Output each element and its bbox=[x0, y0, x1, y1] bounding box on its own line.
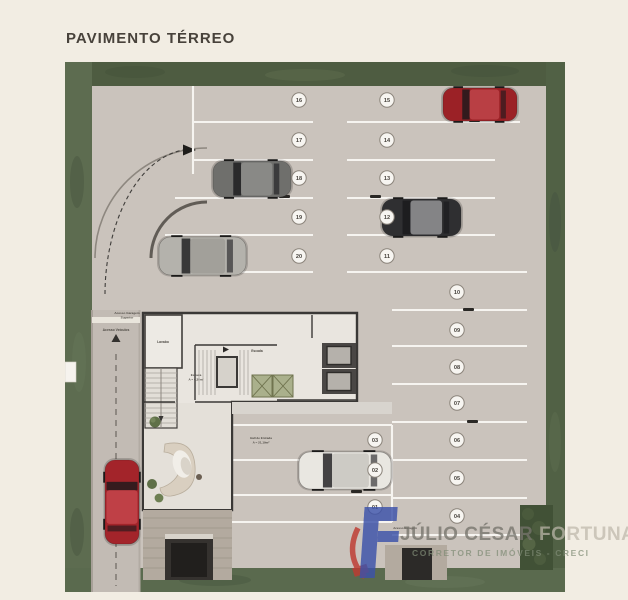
label-garage-access: Acesso Garagem bbox=[393, 526, 417, 530]
car-red-street bbox=[103, 458, 141, 546]
parking-spot-number: 01 bbox=[372, 505, 378, 511]
parking-spot-number: 06 bbox=[454, 438, 460, 444]
parking-spot-badge-05: 05 bbox=[450, 471, 464, 485]
label-hall-2: A = 21,19m² bbox=[253, 441, 270, 445]
floor-plan: Acesso Veículos Acesso Garagem Superior … bbox=[65, 62, 565, 592]
label-ramp-1: Acesso Garagem bbox=[114, 311, 140, 315]
parking-spot-badge-08: 08 bbox=[450, 360, 464, 374]
floor-plan-svg: Acesso Veículos Acesso Garagem Superior … bbox=[65, 62, 565, 592]
parking-spot-number: 11 bbox=[384, 254, 390, 260]
parking-spot-badge-10: 10 bbox=[450, 285, 464, 299]
parking-spot-number: 13 bbox=[384, 176, 390, 182]
parking-spot-number: 10 bbox=[454, 290, 460, 296]
parking-spot-number: 18 bbox=[296, 176, 302, 182]
car-red-top bbox=[441, 86, 519, 123]
parking-spot-badge-14: 14 bbox=[380, 133, 394, 147]
label-stair-left-2: A = 4,38m² bbox=[189, 378, 204, 382]
parking-spot-number: 02 bbox=[372, 468, 378, 474]
parking-spot-badge-02: 02 bbox=[368, 463, 382, 477]
parking-spot-badge-09: 09 bbox=[450, 323, 464, 337]
label-vehicle-access: Acesso Veículos bbox=[103, 328, 130, 332]
label-lavabo: Lavabo bbox=[157, 340, 169, 344]
car-gray-spot18 bbox=[211, 159, 293, 199]
parking-spot-badge-17: 17 bbox=[292, 133, 306, 147]
street bbox=[91, 310, 141, 592]
car-silver-spot20 bbox=[157, 235, 248, 277]
parking-spot-number: 16 bbox=[296, 98, 302, 104]
parking-spot-badge-01: 01 bbox=[368, 500, 382, 514]
label-stair-left-1: Escada bbox=[191, 373, 202, 377]
parking-spot-badge-13: 13 bbox=[380, 171, 394, 185]
parking-spot-number: 05 bbox=[454, 476, 460, 482]
parking-spot-badge-12: 12 bbox=[380, 210, 394, 224]
parking-spot-badge-07: 07 bbox=[450, 396, 464, 410]
parking-spot-number: 12 bbox=[384, 215, 390, 221]
parking-spot-badge-04: 04 bbox=[450, 509, 464, 523]
left-edge-structure bbox=[65, 362, 76, 382]
parking-spot-number: 09 bbox=[454, 328, 460, 334]
parking-spot-badge-06: 06 bbox=[450, 433, 464, 447]
parking-spot-badge-15: 15 bbox=[380, 93, 394, 107]
parking-spot-badge-11: 11 bbox=[380, 249, 394, 263]
rear-entrance bbox=[402, 548, 432, 580]
page-title: PAVIMENTO TÉRREO bbox=[66, 30, 235, 47]
parking-spot-badge-16: 16 bbox=[292, 93, 306, 107]
parking-spot-number: 07 bbox=[454, 401, 460, 407]
label-stair-center: Escada bbox=[251, 349, 263, 353]
label-ramp-2: Superior bbox=[121, 316, 135, 320]
hedge bbox=[520, 505, 553, 570]
parking-spot-number: 04 bbox=[454, 514, 461, 520]
parking-spot-badge-18: 18 bbox=[292, 171, 306, 185]
parking-spot-number: 17 bbox=[296, 138, 302, 144]
parking-spot-number: 14 bbox=[384, 138, 391, 144]
parking-spot-number: 08 bbox=[454, 365, 460, 371]
parking-spot-badge-20: 20 bbox=[292, 249, 306, 263]
staircase-left bbox=[145, 368, 177, 428]
page: PAVIMENTO TÉRREO bbox=[0, 0, 628, 600]
label-hall-1: Hall de Entrada bbox=[250, 436, 272, 440]
parking-spot-badge-19: 19 bbox=[292, 210, 306, 224]
parking-spot-number: 20 bbox=[296, 254, 302, 260]
parking-spot-number: 19 bbox=[296, 215, 302, 221]
service-shafts bbox=[252, 375, 293, 397]
parking-spot-badge-03: 03 bbox=[368, 433, 382, 447]
parking-spot-number: 15 bbox=[384, 98, 390, 104]
parking-spot-number: 03 bbox=[372, 438, 378, 444]
